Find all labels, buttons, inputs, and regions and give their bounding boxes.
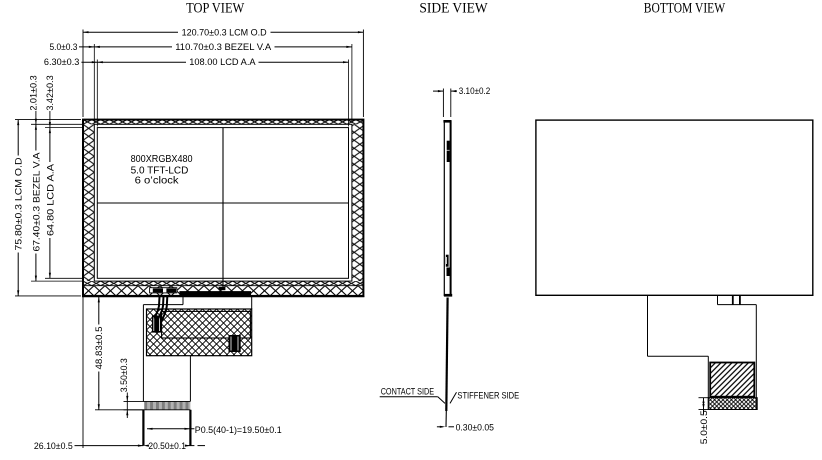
svg-text:67.40±0.3 BEZEL V.A: 67.40±0.3 BEZEL V.A: [31, 152, 42, 252]
svg-text:75.80±0.3 LCM O.D: 75.80±0.3 LCM O.D: [14, 157, 25, 250]
svg-text:800XRGBX480: 800XRGBX480: [131, 153, 193, 165]
svg-text:108.00 LCD A.A: 108.00 LCD A.A: [189, 57, 256, 68]
svg-text:5.0±0.5: 5.0±0.5: [699, 410, 710, 444]
svg-text:CONTACT SIDE: CONTACT SIDE: [381, 387, 434, 398]
svg-text:TOP VIEW: TOP VIEW: [186, 1, 245, 17]
svg-text:BOTTOM VIEW: BOTTOM VIEW: [644, 1, 726, 17]
svg-text:120.70±0.3 LCM O.D: 120.70±0.3 LCM O.D: [182, 28, 267, 39]
svg-text:STIFFENER SIDE: STIFFENER SIDE: [457, 391, 519, 402]
svg-text:0.30±0.05: 0.30±0.05: [456, 423, 494, 434]
svg-text:48.83±0.5: 48.83±0.5: [94, 327, 105, 370]
svg-text:3.42±0.3: 3.42±0.3: [45, 75, 56, 110]
svg-text:SIDE VIEW: SIDE VIEW: [419, 1, 488, 17]
svg-text:2.01±0.3: 2.01±0.3: [29, 75, 40, 110]
svg-text:5.0±0.3: 5.0±0.3: [50, 42, 78, 53]
svg-text:64.80 LCD A.A: 64.80 LCD A.A: [45, 163, 56, 236]
svg-text:3.10±0.2: 3.10±0.2: [459, 86, 491, 97]
svg-text:6 o’clock: 6 o’clock: [135, 174, 180, 186]
svg-text:P0.5(40-1)=19.50±0.1: P0.5(40-1)=19.50±0.1: [195, 425, 282, 436]
svg-text:110.70±0.3 BEZEL V.A: 110.70±0.3 BEZEL V.A: [175, 42, 272, 53]
svg-text:3.50±0.3: 3.50±0.3: [119, 358, 130, 392]
svg-text:26.10±0.5: 26.10±0.5: [34, 441, 73, 452]
svg-text:6.30±0.3: 6.30±0.3: [44, 57, 80, 68]
svg-text:20.50±0.1: 20.50±0.1: [148, 441, 186, 452]
